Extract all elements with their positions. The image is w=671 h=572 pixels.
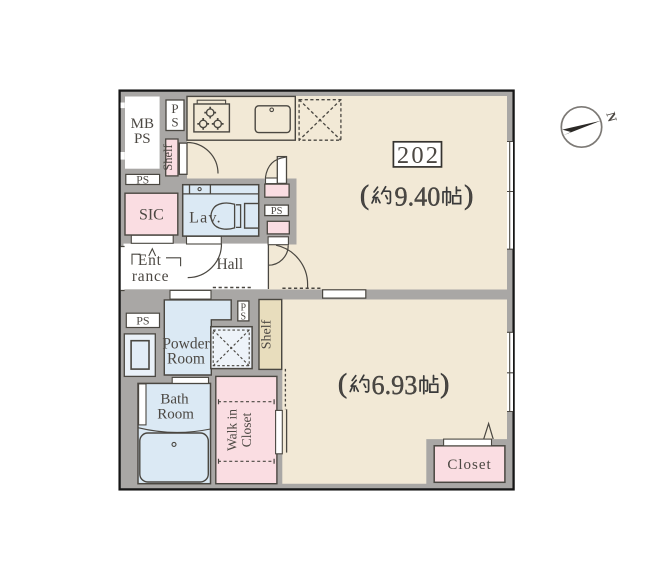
svg-text:): ): [464, 180, 473, 210]
svg-text:Room: Room: [157, 407, 194, 423]
svg-text:Shelf: Shelf: [260, 319, 275, 349]
svg-text:Lav.: Lav.: [189, 210, 222, 227]
svg-text:9.40: 9.40: [395, 181, 441, 211]
svg-text:Hall: Hall: [216, 256, 243, 273]
svg-text:MB: MB: [131, 116, 154, 132]
svg-text:Closet: Closet: [239, 413, 254, 448]
svg-text:Shelf: Shelf: [161, 143, 175, 170]
svg-text:Room: Room: [167, 351, 205, 368]
svg-text:202: 202: [397, 142, 440, 169]
svg-text:(: (: [360, 180, 369, 210]
svg-text:S: S: [241, 312, 247, 323]
svg-text:Closet: Closet: [447, 457, 491, 473]
svg-text:S: S: [171, 115, 178, 130]
svg-text:): ): [440, 368, 449, 398]
svg-text:PS: PS: [136, 314, 149, 328]
svg-text:(: (: [338, 368, 347, 398]
svg-text:PS: PS: [136, 174, 149, 186]
svg-text:PS: PS: [271, 206, 283, 217]
svg-text:Bath: Bath: [160, 392, 189, 408]
svg-text:6.93: 6.93: [372, 370, 418, 400]
svg-text:PS: PS: [134, 131, 151, 147]
svg-text:Ent: Ent: [138, 252, 162, 269]
svg-text:Walk in: Walk in: [225, 409, 240, 451]
svg-text:rance: rance: [132, 268, 170, 285]
svg-text:SIC: SIC: [139, 207, 164, 224]
